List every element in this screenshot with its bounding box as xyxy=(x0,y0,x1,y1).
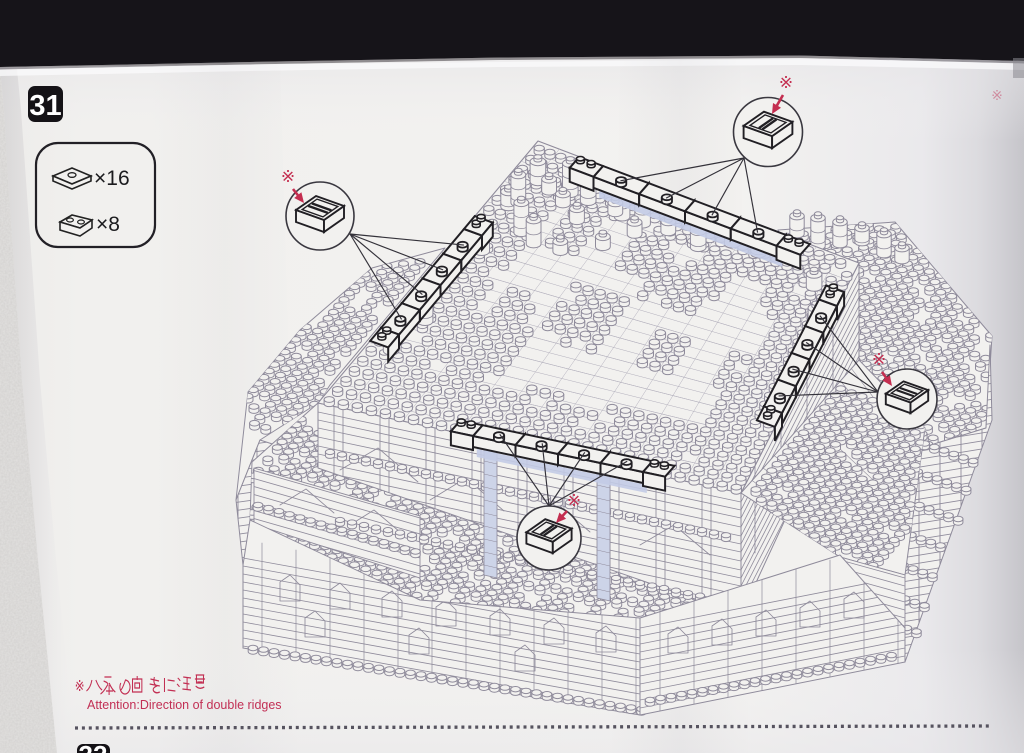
svg-text:※: ※ xyxy=(75,678,85,695)
svg-text:Attention:Direction of double: Attention:Direction of double ridges xyxy=(87,698,282,712)
svg-text:×16: ×16 xyxy=(94,167,130,190)
svg-text:32: 32 xyxy=(79,740,108,753)
svg-text:※: ※ xyxy=(872,350,886,369)
svg-text:※: ※ xyxy=(281,167,295,186)
svg-text:※: ※ xyxy=(567,491,581,510)
svg-text:※: ※ xyxy=(991,87,1003,103)
svg-text:31: 31 xyxy=(29,90,61,122)
svg-text:×8: ×8 xyxy=(96,213,120,236)
svg-text:※: ※ xyxy=(779,73,793,92)
